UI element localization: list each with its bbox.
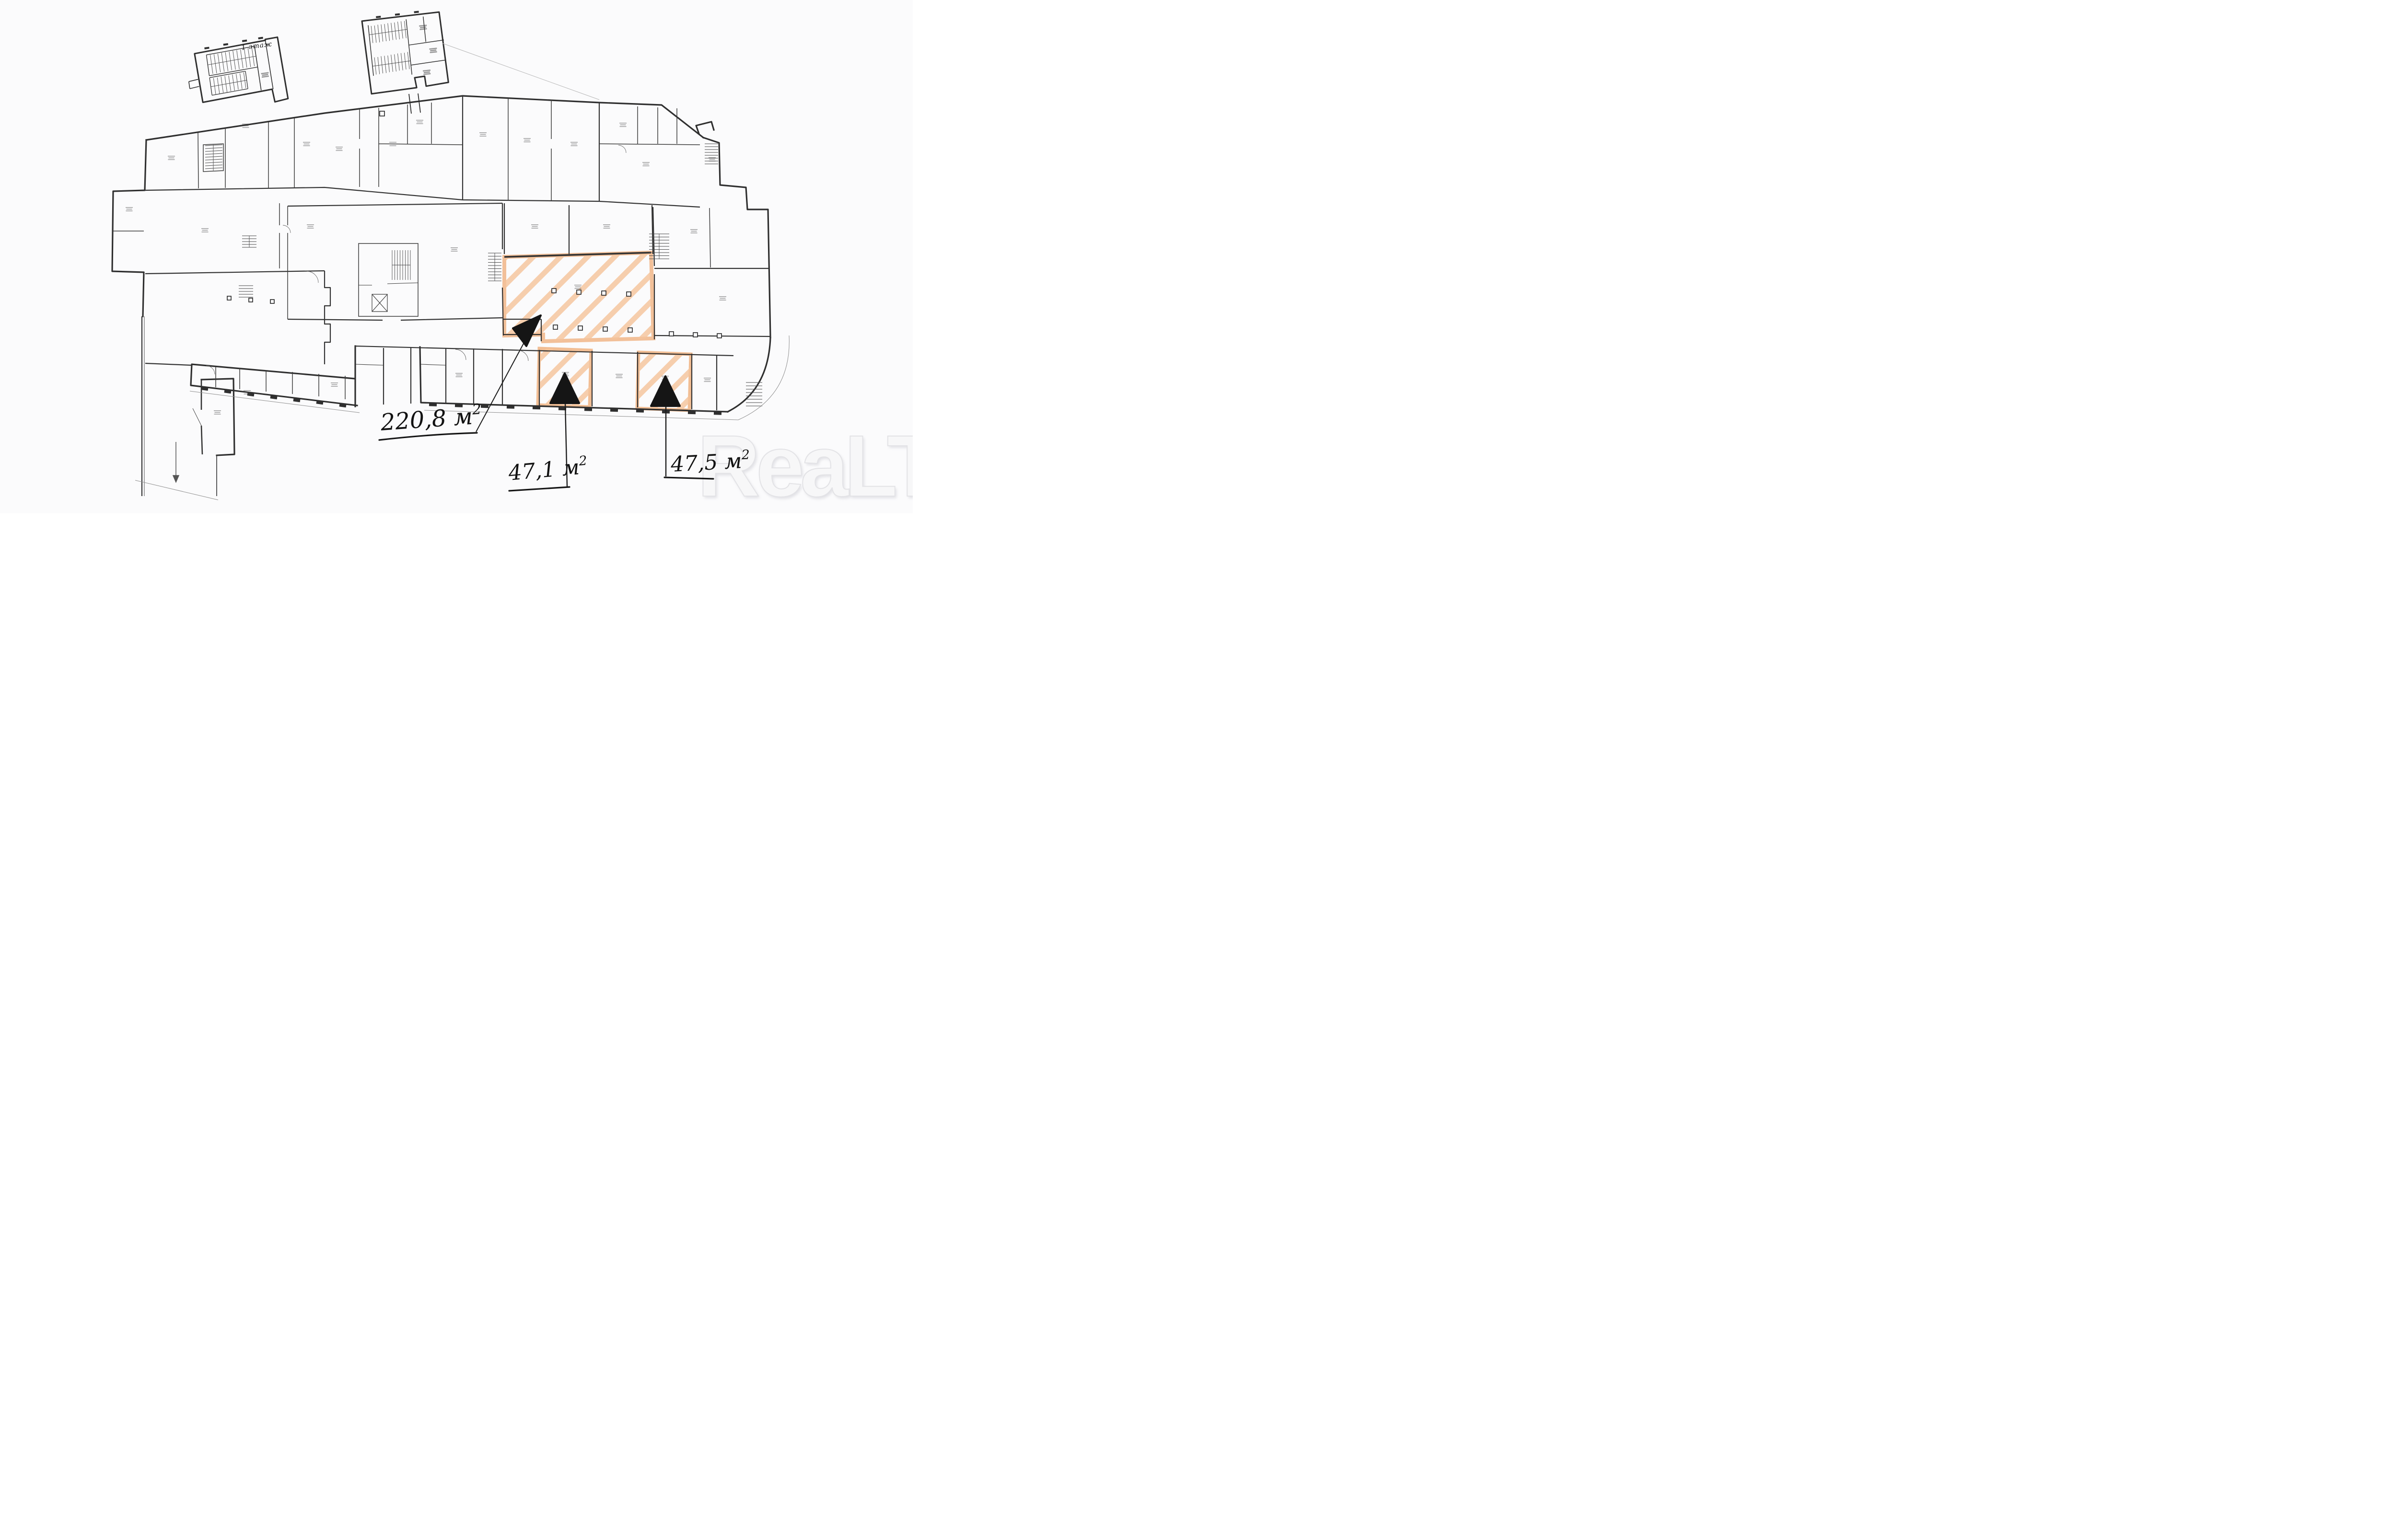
annotation-small-area-1: 47,1 м2: [507, 453, 589, 486]
stair-block-north: [361, 9, 449, 94]
boundary-line-ne: [442, 43, 599, 100]
annotation-underline-small-area-2: [664, 477, 713, 479]
site-arrow: [173, 442, 179, 482]
stair-treads: [368, 21, 412, 75]
leader-line-large-area: [476, 336, 527, 432]
stair-block-northwest: [184, 35, 288, 113]
annotation-small-area-2: 47,5 м2: [670, 447, 751, 477]
connecting-corridor: [409, 93, 420, 114]
main-building-mid-walls: [142, 96, 770, 496]
annotation-underline-small-area-1: [509, 487, 570, 491]
scanned-floor-plan-page: ReaLT: [0, 0, 913, 513]
stair-treads: [206, 47, 260, 94]
floor-label: 1 этаж: [241, 40, 273, 52]
annotation-large-area: 220,8 м2: [379, 401, 483, 436]
floor-plan-drawing: 1 этаж: [0, 0, 913, 513]
